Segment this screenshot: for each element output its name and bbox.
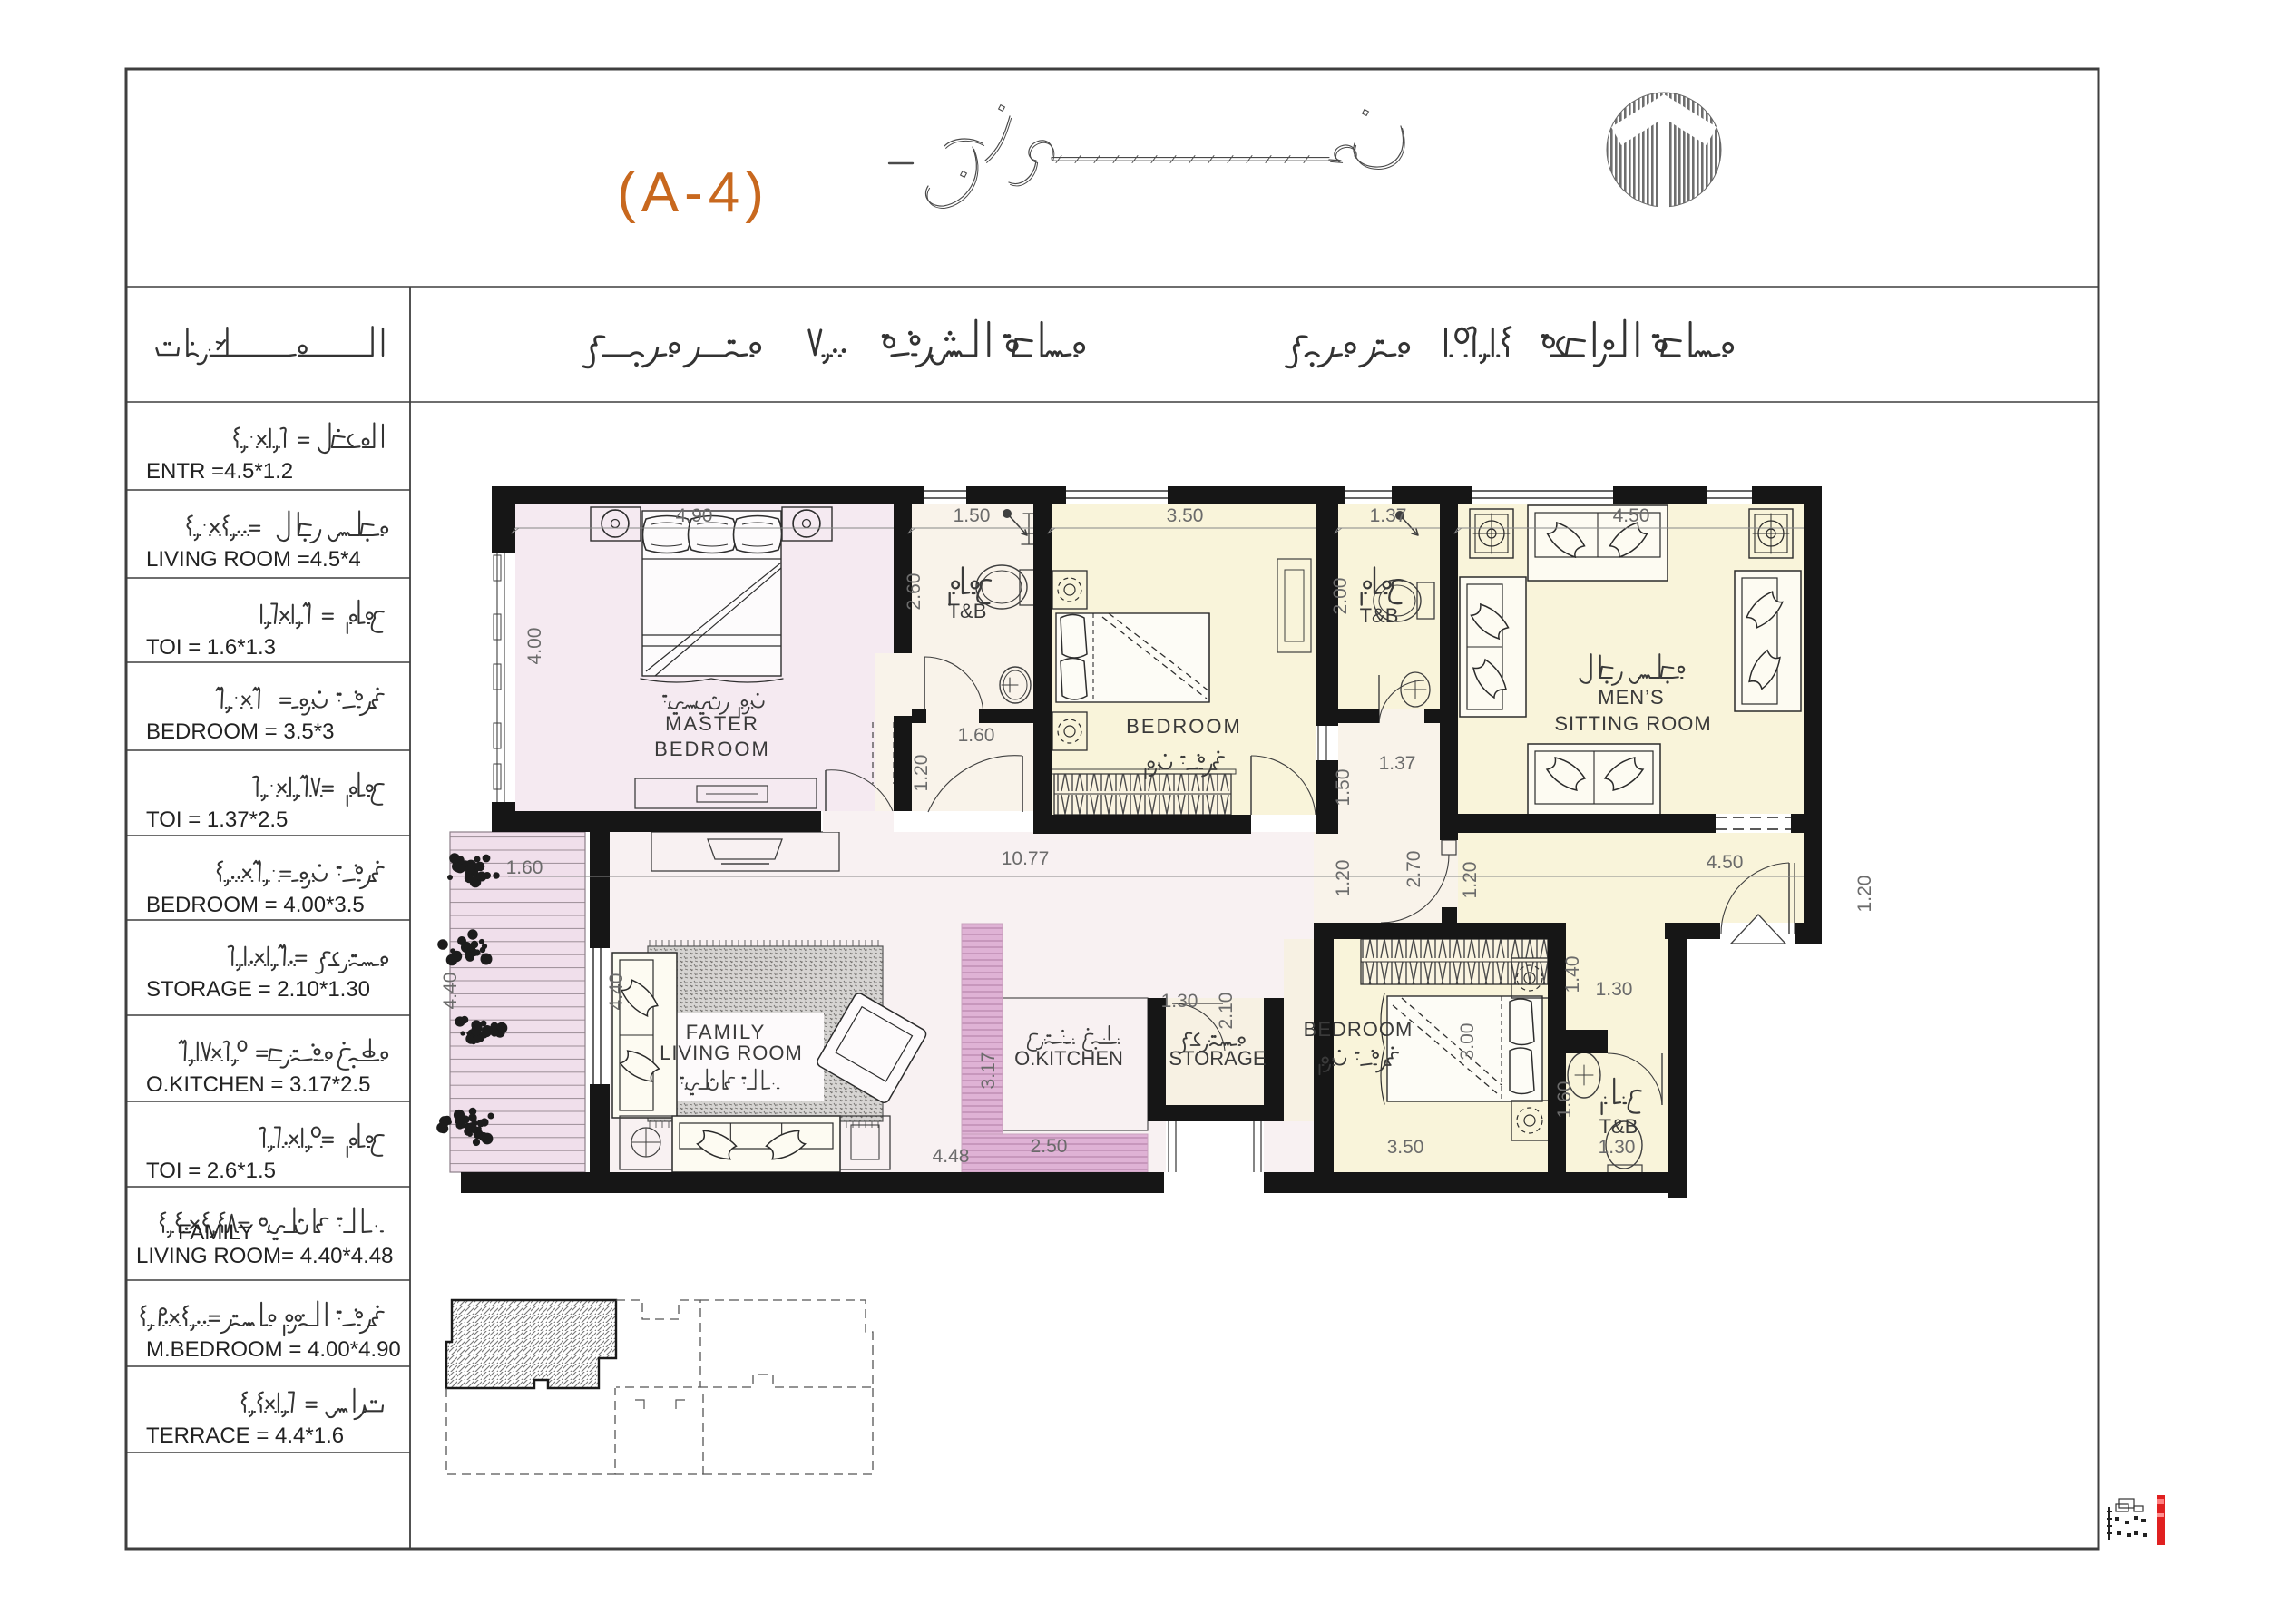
svg-text:MASTER: MASTER (665, 712, 759, 735)
svg-text:1.37: 1.37 (1370, 505, 1407, 526)
svg-text:O.KITCHEN = 3.17*2.5: O.KITCHEN = 3.17*2.5 (146, 1072, 370, 1097)
svg-text:T&B: T&B (1360, 604, 1399, 627)
svg-text:1.20: 1.20 (911, 755, 932, 792)
svg-text:1.30: 1.30 (1599, 1137, 1636, 1158)
svg-text:1.20: 1.20 (1854, 876, 1875, 913)
svg-text:1.60: 1.60 (958, 725, 995, 746)
svg-text:BEDROOM: BEDROOM (654, 738, 770, 760)
svg-text:O.KITCHEN: O.KITCHEN (1014, 1047, 1123, 1070)
svg-text:3.00: 3.00 (1457, 1023, 1478, 1061)
svg-text:2.00: 2.00 (1330, 578, 1351, 615)
svg-text:3.50: 3.50 (1387, 1137, 1424, 1158)
svg-text:ENTR =4.5*1.2: ENTR =4.5*1.2 (146, 459, 293, 484)
svg-text:BEDROOM = 3.5*3: BEDROOM = 3.5*3 (146, 719, 334, 744)
svg-text:1.30: 1.30 (1161, 991, 1198, 1012)
svg-text:SITTING ROOM: SITTING ROOM (1554, 712, 1711, 735)
svg-text:FAMILY: FAMILY (686, 1021, 767, 1043)
svg-text:4.50: 4.50 (1613, 505, 1650, 526)
svg-text:TOI = 2.6*1.5: TOI = 2.6*1.5 (146, 1159, 276, 1183)
svg-text:3.17: 3.17 (978, 1052, 999, 1090)
svg-text:BEDROOM: BEDROOM (1304, 1018, 1414, 1041)
svg-text:1.40: 1.40 (1562, 956, 1583, 993)
svg-text:TERRACE = 4.4*1.6: TERRACE = 4.4*1.6 (146, 1423, 344, 1448)
svg-text:1.60: 1.60 (1554, 1081, 1575, 1119)
svg-text:4.90: 4.90 (676, 505, 713, 526)
svg-text:LIVING ROOM= 4.40*4.48: LIVING ROOM= 4.40*4.48 (136, 1244, 393, 1268)
svg-text:LIVING ROOM: LIVING ROOM (660, 1042, 803, 1064)
svg-text:MEN’S: MEN’S (1598, 686, 1664, 709)
svg-text:1.60: 1.60 (506, 857, 543, 878)
svg-text:TOI = 1.6*1.3: TOI = 1.6*1.3 (146, 635, 276, 660)
svg-text:4.50: 4.50 (1707, 852, 1744, 873)
svg-text:M.BEDROOM = 4.00*4.90: M.BEDROOM = 4.00*4.90 (146, 1337, 401, 1362)
svg-text:BEDROOM = 4.00*3.5: BEDROOM = 4.00*3.5 (146, 893, 365, 917)
svg-text:(A-4): (A-4) (617, 161, 769, 224)
svg-text:1.30: 1.30 (1596, 979, 1633, 1000)
svg-text:TOI = 1.37*2.5: TOI = 1.37*2.5 (146, 807, 288, 832)
svg-text:2.50: 2.50 (1031, 1136, 1068, 1157)
svg-text:4.48: 4.48 (933, 1146, 970, 1167)
svg-text:BEDROOM: BEDROOM (1126, 715, 1242, 738)
svg-text:FAMILY: FAMILY (178, 1220, 254, 1245)
svg-text:2.10: 2.10 (1216, 993, 1237, 1030)
svg-text:LIVING ROOM =4.5*4: LIVING ROOM =4.5*4 (146, 547, 361, 572)
svg-text:1.37: 1.37 (1379, 753, 1416, 774)
svg-text:STORAGE = 2.10*1.30: STORAGE = 2.10*1.30 (146, 977, 370, 1002)
svg-text:T&B: T&B (948, 600, 987, 622)
svg-text:4.00: 4.00 (524, 628, 545, 665)
svg-text:3.50: 3.50 (1167, 505, 1204, 526)
svg-text:T&B: T&B (1599, 1115, 1638, 1138)
svg-text:1.50: 1.50 (954, 505, 991, 526)
svg-text:1.20: 1.20 (1460, 862, 1481, 899)
svg-text:1.20: 1.20 (1333, 860, 1354, 897)
svg-text:4.40: 4.40 (606, 973, 627, 1011)
svg-text:1.50: 1.50 (1333, 769, 1354, 807)
svg-text:2.60: 2.60 (904, 573, 924, 611)
svg-text:10.77: 10.77 (1002, 848, 1050, 869)
svg-text:4.40: 4.40 (440, 973, 461, 1010)
svg-text:2.70: 2.70 (1404, 851, 1424, 888)
svg-text:STORAGE: STORAGE (1169, 1047, 1266, 1070)
